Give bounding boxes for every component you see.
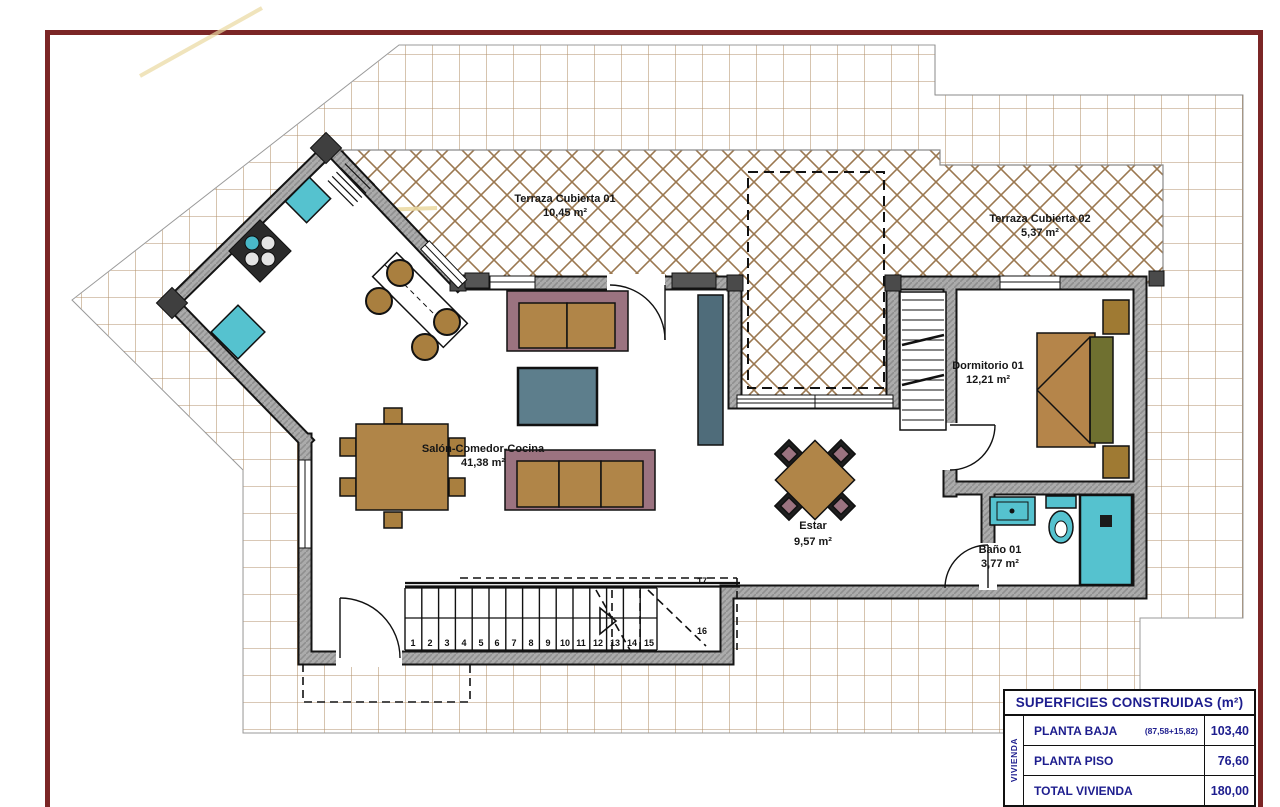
stair-label-17: 17: [697, 576, 707, 586]
window-north-1: [490, 276, 535, 289]
table-row-value: 76,60: [1204, 746, 1254, 776]
wardrobe: [900, 292, 946, 430]
dining-table-set: [340, 408, 465, 528]
svg-text:12: 12: [593, 638, 603, 648]
table-row-label: PLANTA BAJA(87,58+15,82): [1024, 716, 1204, 746]
bar-stool: [366, 288, 392, 314]
svg-text:14: 14: [627, 638, 637, 648]
post: [727, 275, 743, 291]
tv-unit: [698, 295, 723, 445]
svg-text:7: 7: [511, 638, 516, 648]
label-terraza2: Terraza Cubierta 02: [989, 213, 1090, 225]
highlight-streak: [140, 8, 262, 76]
label-dormitorio-area: 12,21 m²: [966, 374, 1010, 386]
window-west: [299, 460, 311, 548]
label-terraza1-area: 10,45 m²: [543, 207, 587, 219]
areas-table-group: VIVIENDA: [1005, 716, 1024, 805]
post: [885, 275, 901, 291]
bar-stool: [387, 260, 413, 286]
svg-text:5: 5: [478, 638, 483, 648]
table-row-value: 180,00: [1204, 776, 1254, 805]
label-salon: Salón-Comedor-Cocina: [422, 443, 545, 455]
window-patio-sliding: [737, 395, 893, 408]
nightstand: [1103, 300, 1129, 334]
areas-table-title: SUPERFICIES CONSTRUIDAS (m²): [1005, 691, 1254, 716]
label-terraza2-area: 5,37 m²: [1021, 227, 1059, 239]
shutter-box: [672, 273, 716, 288]
shower: [1080, 495, 1132, 585]
areas-table: SUPERFICIES CONSTRUIDAS (m²) VIVIENDA PL…: [1003, 689, 1256, 807]
svg-text:1: 1: [410, 638, 415, 648]
coffee-table: [518, 368, 597, 425]
sofa-3-seat: [505, 450, 655, 510]
svg-text:4: 4: [461, 638, 466, 648]
svg-text:9: 9: [545, 638, 550, 648]
bed: [1037, 333, 1113, 447]
floor-plan-drawing: 1 2 3 4 5 6 7 8 9 10 11 12 13 14 15 16 1…: [0, 0, 1280, 807]
stair-label-16: 16: [697, 626, 707, 636]
label-estar-area: 9,57 m²: [794, 536, 832, 548]
label-bano-area: 3,77 m²: [981, 558, 1019, 570]
label-terraza1: Terraza Cubierta 01: [514, 193, 615, 205]
label-dormitorio: Dormitorio 01: [952, 360, 1024, 372]
table-row-value: 103,40: [1204, 716, 1254, 746]
svg-text:15: 15: [644, 638, 654, 648]
svg-text:3: 3: [444, 638, 449, 648]
svg-text:11: 11: [576, 638, 586, 648]
bar-stool: [434, 309, 460, 335]
window-bedroom: [1000, 276, 1060, 289]
table-row-label: PLANTA PISO: [1024, 746, 1204, 776]
svg-text:8: 8: [528, 638, 533, 648]
post: [1149, 271, 1164, 286]
svg-text:6: 6: [494, 638, 499, 648]
shutter-box: [465, 273, 489, 288]
label-bano: Baño 01: [979, 544, 1022, 556]
floor-plan-page: 1 2 3 4 5 6 7 8 9 10 11 12 13 14 15 16 1…: [0, 0, 1280, 807]
svg-text:10: 10: [560, 638, 570, 648]
svg-text:2: 2: [427, 638, 432, 648]
estar-table-set: [775, 440, 855, 520]
sofa-2-seat: [507, 291, 628, 351]
toilet: [1046, 496, 1076, 543]
table-row-label: TOTAL VIVIENDA: [1024, 776, 1204, 805]
nightstand: [1103, 446, 1129, 478]
label-salon-area: 41,38 m²: [461, 457, 505, 469]
bar-stool: [412, 334, 438, 360]
label-estar: Estar: [799, 520, 827, 532]
svg-text:13: 13: [610, 638, 620, 648]
